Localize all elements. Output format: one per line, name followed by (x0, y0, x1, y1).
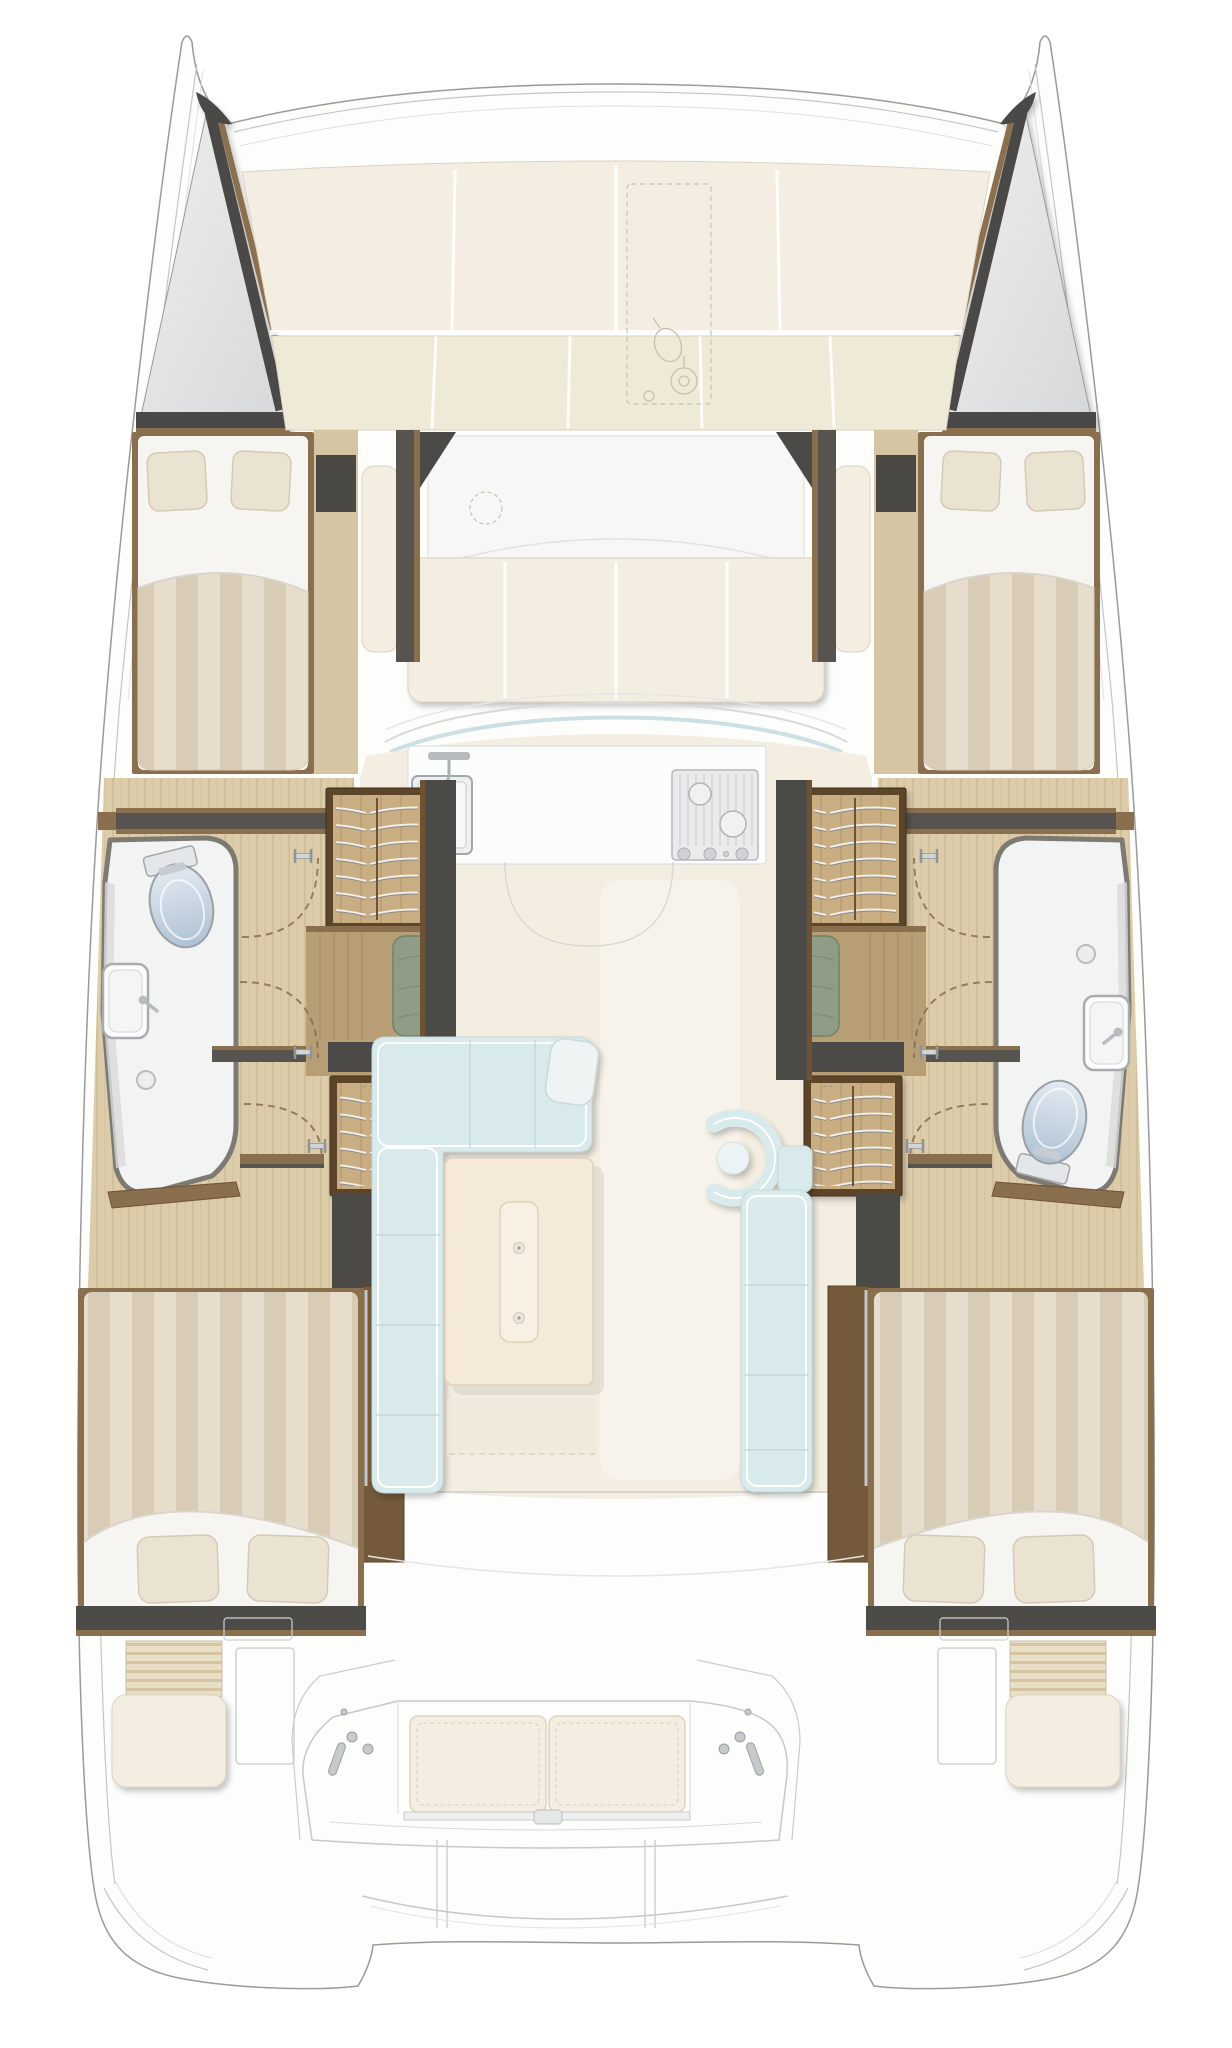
pillow (147, 451, 208, 512)
stern-seat-cushion (1006, 1695, 1120, 1787)
bed-foot-trim (76, 1630, 366, 1636)
starboard-inner-wall-trim (807, 780, 812, 1080)
port-aft-cabin (76, 1288, 366, 1636)
port-bow-aft-bulkhead (136, 412, 290, 428)
bed-footboard (866, 1606, 1156, 1630)
pillow (1025, 451, 1086, 512)
starboard-forward-cabin (874, 430, 1100, 774)
rail-cleat-icon (534, 1810, 562, 1824)
starboard-cockpit-wall-trim (812, 430, 818, 662)
stove-knobs (678, 848, 748, 860)
pillow (903, 1535, 985, 1604)
forward-cockpit-footwell (428, 436, 804, 564)
transom-steps (1010, 1641, 1106, 1697)
starboard-aft-cabin (866, 1288, 1156, 1636)
port-wardrobe-forward (326, 788, 428, 930)
sunpad-gap (270, 330, 962, 335)
port-side-cushion (362, 466, 398, 652)
starboard-inner-wall-aft (856, 1194, 900, 1290)
port-cockpit-wall-trim (414, 430, 420, 662)
aft-bench (303, 1701, 787, 1848)
stern-seat-cushion (112, 1695, 226, 1787)
port-inner-wall-aft (332, 1194, 376, 1290)
cabin-entry-step (876, 455, 916, 512)
washbasin-icon (103, 964, 157, 1038)
starboard-wardrobe-aft (804, 1076, 902, 1196)
pillow (231, 451, 292, 512)
saloon-bench (447, 1398, 597, 1454)
burner-icon (720, 811, 746, 837)
sunpad-backrest (272, 336, 960, 430)
port-forward-cabin (132, 430, 358, 774)
pillow (1013, 1535, 1095, 1604)
shower-drain-icon (137, 1071, 155, 1089)
saloon-table (445, 1158, 604, 1395)
bench-cushion (549, 1716, 685, 1812)
washbasin-icon (1084, 996, 1129, 1070)
pillow (941, 451, 1002, 512)
port-inner-wall-forward (420, 780, 456, 1080)
port-inner-wall-trim (420, 780, 425, 1080)
starboard-sofa (741, 1146, 812, 1492)
bed-foot-trim (866, 1630, 1156, 1636)
bench-cushion (410, 1716, 546, 1812)
starboard-bathroom (992, 838, 1129, 1208)
starboard-forward-bulkhead (878, 808, 1134, 834)
forward-cockpit (362, 430, 870, 702)
catamaran-floor-plan: Catamaran interior layout floor plan, bo… (0, 0, 1232, 2048)
cabin-entry-step (316, 455, 356, 512)
starboard-saloon-side-wall (828, 1286, 870, 1562)
starboard-inner-wall-forward (776, 780, 812, 1080)
bed-footboard (76, 1606, 366, 1630)
port-forward-bulkhead (98, 808, 354, 834)
sofa-corner-cushion (778, 1146, 812, 1192)
bed-duvet (924, 573, 1094, 770)
saloon-walkway (600, 880, 740, 1480)
pillow (137, 1535, 219, 1604)
foredeck-sunpad (242, 161, 990, 430)
galley-stove (672, 770, 758, 860)
bed-duvet (138, 573, 308, 770)
pillow (247, 1535, 329, 1604)
starboard-side-cushion (834, 466, 870, 652)
starboard-aft-bulkhead (908, 1154, 992, 1168)
sofa-armrest-cushion (544, 1037, 600, 1107)
port-bathroom (103, 838, 240, 1208)
port-aft-bulkhead (240, 1154, 324, 1168)
transom-steps (126, 1641, 222, 1697)
burner-icon (689, 783, 711, 805)
shower-drain-icon (1077, 945, 1095, 963)
starboard-wardrobe-forward (804, 788, 906, 930)
floor-plan-page: Catamaran interior layout floor plan, bo… (0, 0, 1232, 2048)
starboard-bow-aft-bulkhead (942, 412, 1096, 428)
